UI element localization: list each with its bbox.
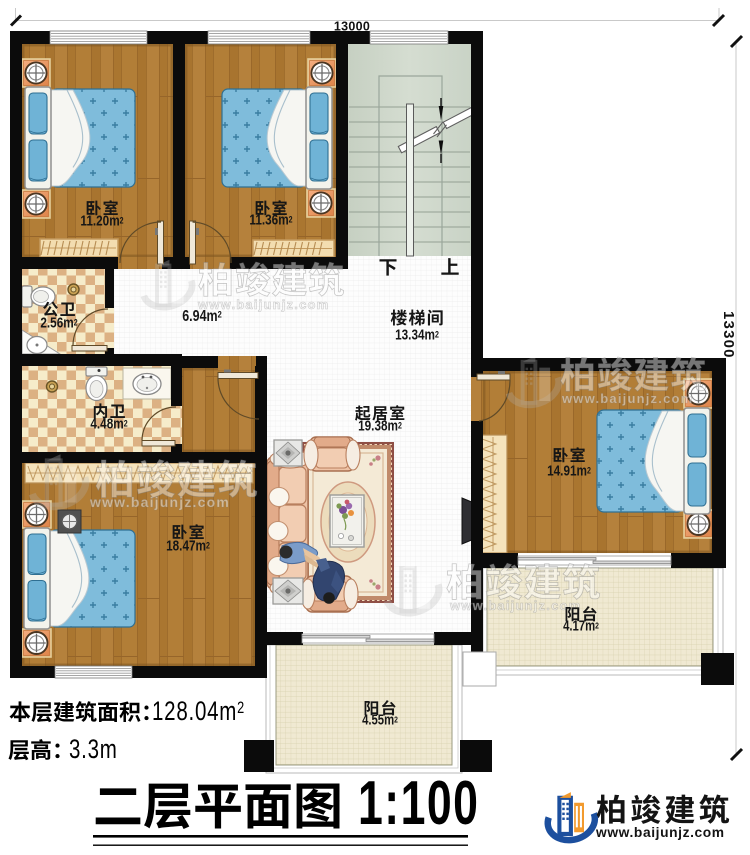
svg-text:13300: 13300 bbox=[720, 311, 737, 359]
svg-text:www.baijunjz.com: www.baijunjz.com bbox=[449, 598, 581, 613]
svg-text:www.baijunjz.com: www.baijunjz.com bbox=[561, 391, 693, 406]
svg-text:4.55m2: 4.55m2 bbox=[362, 711, 398, 728]
svg-text:2.56m2: 2.56m2 bbox=[40, 314, 78, 331]
svg-text:1:100: 1:100 bbox=[358, 769, 479, 838]
svg-text:www.baijunjz.com: www.baijunjz.com bbox=[89, 494, 230, 510]
svg-text:4.48m2: 4.48m2 bbox=[90, 415, 128, 432]
svg-text:4.17m2: 4.17m2 bbox=[563, 617, 599, 634]
svg-text:14.91m2: 14.91m2 bbox=[547, 462, 591, 479]
svg-text:13.34m2: 13.34m2 bbox=[395, 326, 439, 343]
svg-text:11.20m2: 11.20m2 bbox=[80, 212, 124, 229]
svg-text:19.38m2: 19.38m2 bbox=[358, 417, 402, 434]
svg-text:6.94m2: 6.94m2 bbox=[182, 308, 222, 326]
svg-text:128.04m2: 128.04m2 bbox=[152, 696, 245, 726]
svg-text:3.3m: 3.3m bbox=[69, 734, 118, 764]
svg-text:11.36m2: 11.36m2 bbox=[249, 211, 293, 228]
svg-text:www.baijunjz.com: www.baijunjz.com bbox=[595, 825, 725, 840]
svg-text:18.47m2: 18.47m2 bbox=[166, 537, 210, 554]
